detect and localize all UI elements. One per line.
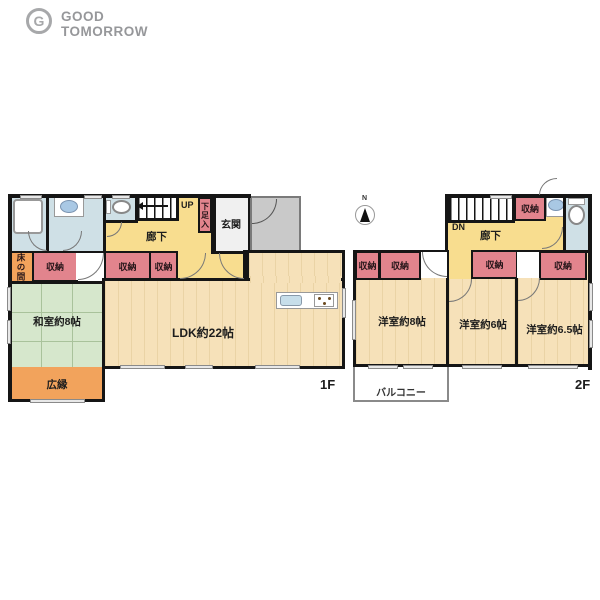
window-1f xyxy=(120,365,165,369)
wall-2f-left-upper xyxy=(445,194,448,252)
door-gap-west65 xyxy=(517,252,540,278)
logo-line1: GOOD xyxy=(61,9,148,24)
bathtub-icon xyxy=(13,199,43,234)
ldk-label: LDK約22帖 xyxy=(158,324,248,341)
window-1f xyxy=(342,288,346,318)
hiroen-label: 広縁 xyxy=(20,377,94,392)
window-1f xyxy=(112,195,130,199)
toilet-icon-1f xyxy=(112,200,131,214)
logo-wordmark: GOOD TOMORROW xyxy=(61,9,148,39)
floor1-label: 1F xyxy=(320,377,335,392)
window-1f xyxy=(7,320,11,344)
kitchen-stove-icon xyxy=(314,294,334,307)
corridor-label-1f: 廊下 xyxy=(146,229,167,244)
floorplan-page: { "logo": { "icon_letter": "G", "line1":… xyxy=(0,0,600,600)
storage-1f-a: 収納 xyxy=(32,251,78,282)
window-1f xyxy=(20,195,42,199)
logo-g-icon: G xyxy=(29,11,49,31)
corridor-2f-vestibule xyxy=(449,248,472,279)
corridor-label-2f: 廊下 xyxy=(480,228,501,243)
window-2f xyxy=(490,195,512,199)
toilet-tank-2f xyxy=(568,198,585,205)
entrance-label: 玄関 xyxy=(221,216,241,231)
balcony-label: バルコニー xyxy=(360,384,442,399)
wall-2f-top xyxy=(445,194,592,198)
compass-n-label: N xyxy=(362,195,367,202)
window-2f xyxy=(403,365,433,369)
up-label: UP xyxy=(181,200,194,210)
washitsu-label: 和室約8帖 xyxy=(12,314,102,329)
window-2f xyxy=(368,365,398,369)
storage-2f-hall: 収納 xyxy=(514,196,546,221)
room-west8-label: 洋室約8帖 xyxy=(360,314,444,329)
storage-2f-d: 収納 xyxy=(539,251,587,280)
window-1f xyxy=(185,365,213,369)
wash-basin-icon-2f xyxy=(548,199,564,211)
shoe-box-1f: 下足入 xyxy=(198,197,212,233)
stairs-up-arrow xyxy=(142,205,168,207)
window-2f xyxy=(352,300,356,340)
room-west6-label: 洋室約6帖 xyxy=(450,317,516,332)
storage-2f-a: 収納 xyxy=(355,251,380,280)
ldk-seam-cover xyxy=(250,276,341,283)
logo-line2: TOMORROW xyxy=(61,24,148,39)
kitchen-sink-icon xyxy=(280,295,302,306)
door-arc-2f-top xyxy=(539,178,557,195)
window-1f xyxy=(30,399,85,403)
window-2f xyxy=(462,365,502,369)
window-1f xyxy=(84,195,102,199)
wash-basin-icon-1f xyxy=(60,200,78,213)
room-west65-label: 洋室約6.5帖 xyxy=(518,322,591,337)
window-2f xyxy=(589,320,593,348)
logo: G xyxy=(26,8,52,34)
window-2f xyxy=(589,283,593,311)
window-1f xyxy=(7,287,11,311)
stove-burner-dot xyxy=(318,297,321,300)
toilet-icon-2f xyxy=(568,205,585,225)
north-arrow-icon xyxy=(360,208,370,222)
dn-label: DN xyxy=(452,222,465,232)
stairs-up-arrowhead xyxy=(137,202,143,210)
window-2f xyxy=(528,365,578,369)
toilet-tank-1f xyxy=(106,200,111,214)
storage-2f-c: 収納 xyxy=(471,250,518,279)
window-1f xyxy=(255,365,300,369)
floor2-label: 2F xyxy=(575,377,590,392)
storage-2f-b: 収納 xyxy=(379,251,421,280)
